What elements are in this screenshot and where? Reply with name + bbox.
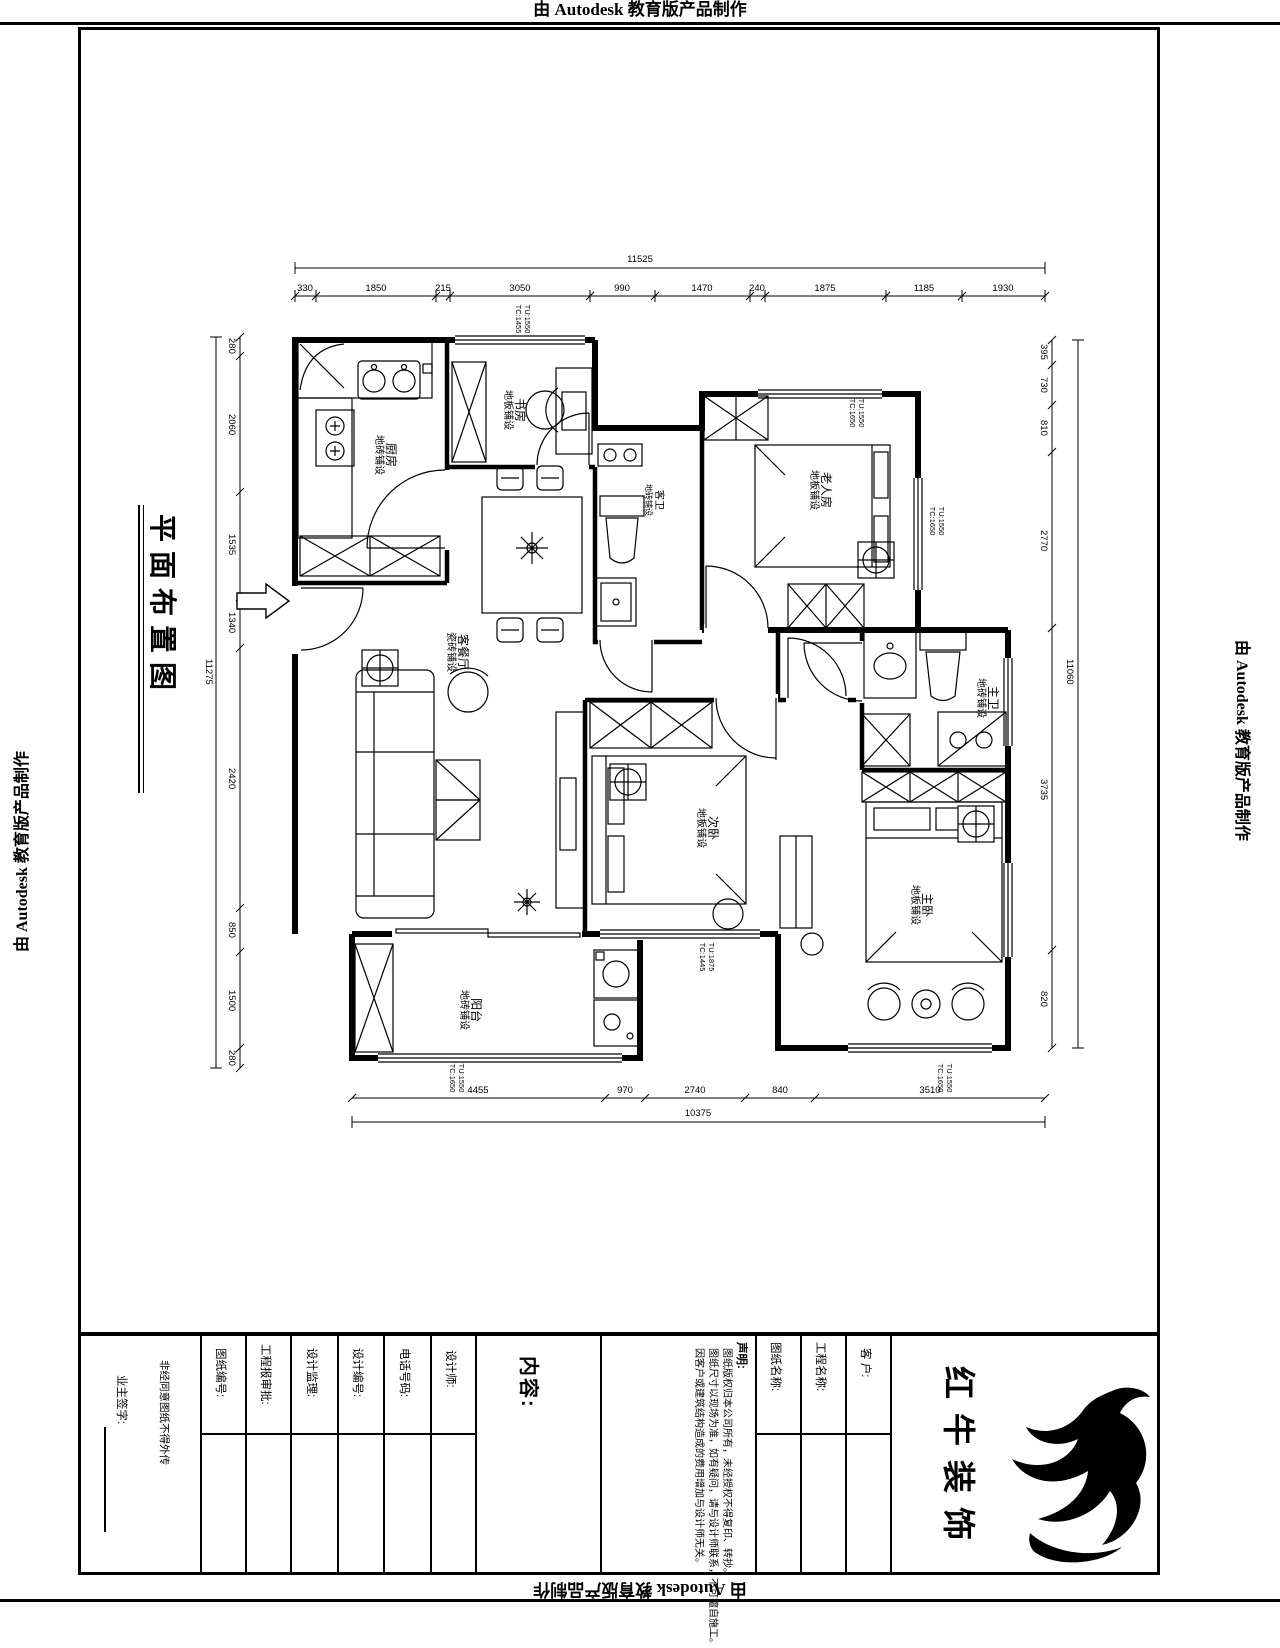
sheet-title: 平面布置图 — [144, 514, 184, 699]
room-label-elder-room: 老人房地板铺设 — [807, 450, 833, 530]
field-design-supervisor: 设计监理: — [304, 1348, 320, 1397]
dim-label-total-left: 11275 — [203, 659, 214, 685]
dim-label: 730 — [1038, 377, 1049, 393]
titleblock-divider — [290, 1336, 292, 1575]
titleblock-divider — [383, 1336, 385, 1575]
window-tag: TU:1550TC:1650 — [848, 391, 866, 435]
signature-line — [104, 1427, 106, 1532]
dim-label: 1340 — [226, 612, 237, 633]
titleblock-divider — [475, 1336, 477, 1575]
titleblock-divider — [845, 1336, 847, 1575]
statement-label: 声明: — [734, 1342, 750, 1369]
titleblock-divider — [430, 1336, 432, 1575]
dim-label: 970 — [595, 1085, 655, 1096]
dim-label: 820 — [1038, 991, 1049, 1007]
titleblock-top-border — [78, 1332, 1160, 1336]
content-label: 内容: — [516, 1356, 545, 1409]
dim-label-total-top: 11525 — [610, 254, 670, 265]
room-label-living-dining: 客餐厅瓷砖铺设 — [444, 612, 470, 692]
titleblock-divider — [600, 1336, 602, 1575]
dim-label: 280 — [226, 1050, 237, 1066]
dim-label: 1930 — [973, 283, 1033, 294]
titleblock-divider — [200, 1336, 202, 1575]
field-design-number: 设计编号: — [350, 1348, 366, 1397]
owner-signature-label: 业主签字: — [114, 1375, 130, 1424]
dim-label: 3050 — [490, 283, 550, 294]
room-label-study: 书房地板铺设 — [501, 370, 527, 450]
dim-label: 2740 — [665, 1085, 725, 1096]
titleblock-divider — [800, 1336, 802, 1575]
project-name-label: 工程名称: — [813, 1342, 829, 1391]
titleblock-header-divider — [200, 1433, 477, 1435]
dim-label: 395 — [1038, 344, 1049, 360]
dim-label-total-bottom: 10375 — [668, 1108, 728, 1119]
dim-label: 1535 — [226, 534, 237, 555]
field-project-approval: 工程报审批: — [258, 1344, 274, 1405]
dim-label: 3510 — [900, 1085, 960, 1096]
dim-label: 990 — [592, 283, 652, 294]
dim-label: 2060 — [226, 414, 237, 435]
dim-label: 840 — [750, 1085, 810, 1096]
drawing-name-label: 图纸名称: — [768, 1342, 784, 1391]
window-tag: TU:1875TC:1445 — [698, 935, 716, 979]
cad-sheet: { "banner_text": "由 Autodesk 教育版产品制作", "… — [0, 0, 1280, 1600]
note-column: 非经同意图纸不得外传 — [157, 1360, 172, 1465]
dim-label: 330 — [275, 283, 335, 294]
titleblock-divider — [755, 1336, 757, 1575]
titleblock-divider — [890, 1336, 892, 1575]
window-tag: TU:1550TC:1650 — [928, 499, 946, 543]
field-phone-number: 电话号码: — [397, 1348, 413, 1397]
window-tag: TU:1550TC:1455 — [514, 297, 532, 341]
dim-label: 1500 — [226, 990, 237, 1011]
floorplan-drawing — [0, 0, 1280, 1600]
dim-label: 4455 — [448, 1085, 508, 1096]
room-label-balcony: 阳台地砖铺设 — [457, 970, 483, 1050]
room-label-master-bath: 主卫地砖铺设 — [974, 658, 1000, 738]
room-label-master-bedroom: 主卧地板铺设 — [908, 865, 934, 945]
titleblock-divider — [245, 1336, 247, 1575]
statement-text: 图纸版权归本公司所有，未经授权不得复印、转抄。 图纸尺寸以现场为准，如有疑问，请… — [691, 1348, 733, 1563]
room-label-kitchen: 厨房地砖铺设 — [372, 415, 398, 495]
dim-label: 2770 — [1038, 530, 1049, 551]
dim-label: 1850 — [346, 283, 406, 294]
dim-label: 850 — [226, 922, 237, 938]
dim-label: 215 — [413, 283, 473, 294]
dim-label: 240 — [727, 283, 787, 294]
company-logo-bull — [1000, 1385, 1155, 1565]
dim-label: 1875 — [795, 283, 855, 294]
field-designer: 设计师: — [443, 1350, 459, 1388]
dim-label: 1185 — [894, 283, 954, 294]
dim-label: 1470 — [672, 283, 732, 294]
company-name: 红牛装饰 — [937, 1366, 985, 1554]
titleblock-header-divider — [755, 1433, 892, 1435]
titleblock-divider — [337, 1336, 339, 1575]
field-drawing-number: 图纸编号: — [213, 1348, 229, 1397]
dim-label: 810 — [1038, 420, 1049, 436]
dim-label-total-right: 11060 — [1064, 659, 1075, 685]
dim-label: 2420 — [226, 768, 237, 789]
dim-label: 3735 — [1038, 779, 1049, 800]
dim-label: 280 — [226, 338, 237, 354]
client-label: 客 户: — [858, 1348, 874, 1377]
room-label-second-bedroom: 次卧地板铺设 — [694, 788, 720, 868]
room-label-guest-bath: 客卫地砖铺设 — [643, 460, 664, 540]
